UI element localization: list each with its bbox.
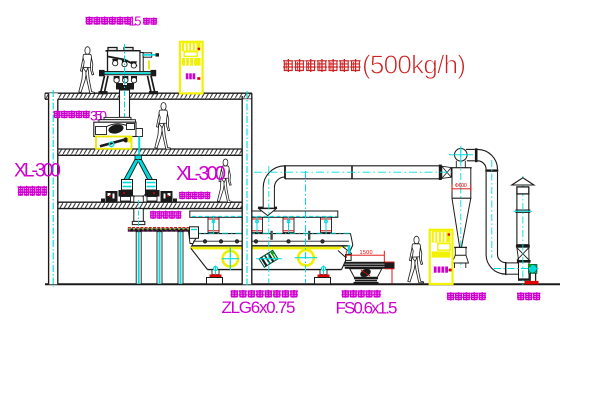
svg-text:FS0.6x1.5: FS0.6x1.5 [336, 299, 398, 318]
svg-text:XL-300: XL-300 [176, 163, 226, 185]
svg-text:XL-300: XL-300 [14, 161, 61, 182]
svg-text:1.5: 1.5 [129, 14, 142, 29]
svg-text:1500: 1500 [360, 250, 373, 256]
svg-text:Φ600: Φ600 [455, 183, 467, 189]
svg-text:ZLG6x0.75: ZLG6x0.75 [222, 298, 296, 317]
svg-text:(500kg/h): (500kg/h) [362, 50, 466, 80]
